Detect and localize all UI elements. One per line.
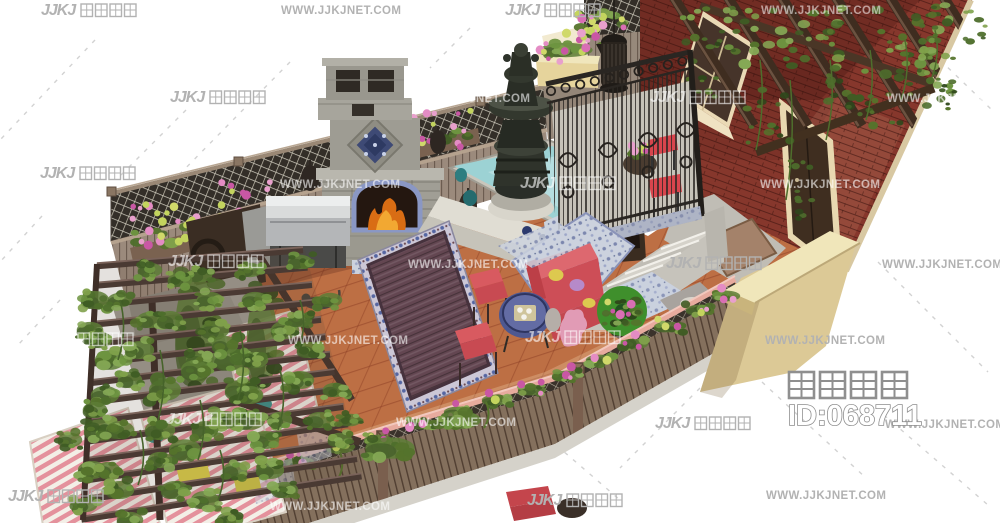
svg-text:ID:068711: ID:068711 <box>788 400 922 432</box>
